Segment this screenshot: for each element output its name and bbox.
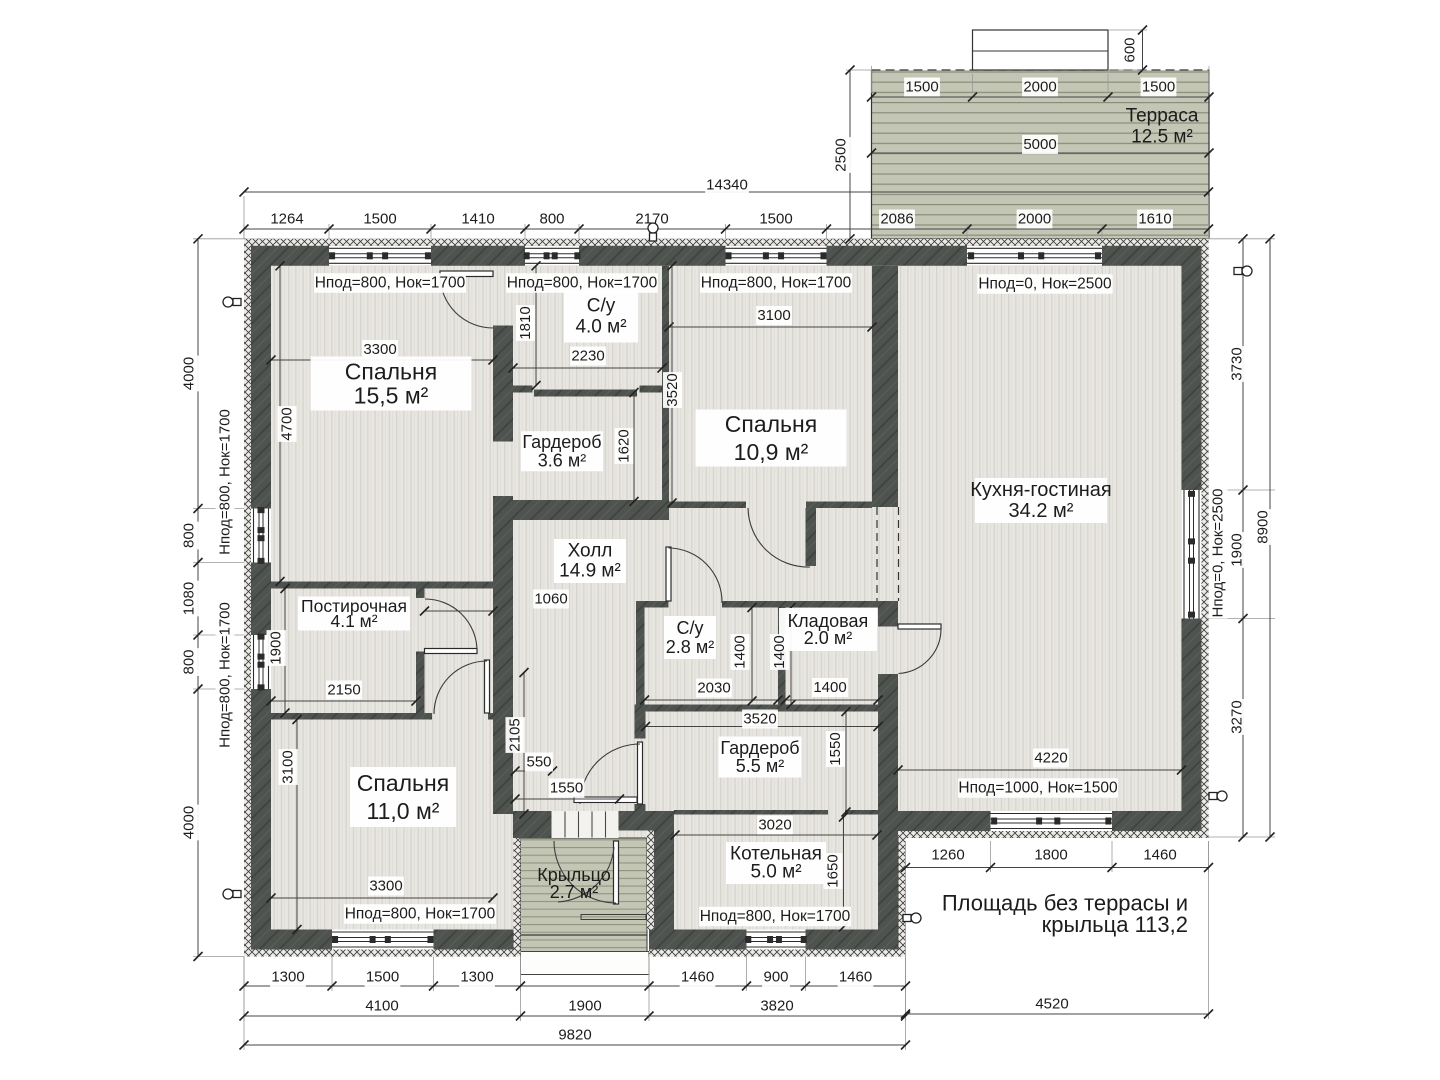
svg-text:14.9 м²: 14.9 м² — [559, 561, 621, 582]
svg-text:2150: 2150 — [327, 682, 360, 699]
svg-text:Нпод=800, Нок=1700: Нпод=800, Нок=1700 — [507, 275, 658, 292]
svg-text:3100: 3100 — [280, 750, 297, 783]
svg-text:Спальня: Спальня — [725, 411, 817, 437]
svg-text:2086: 2086 — [880, 211, 913, 228]
svg-text:2.0 м²: 2.0 м² — [804, 628, 852, 648]
svg-text:3020: 3020 — [758, 817, 791, 834]
svg-text:С/у: С/у — [677, 618, 704, 638]
svg-text:2.7 м²: 2.7 м² — [550, 882, 598, 902]
svg-text:1610: 1610 — [1138, 211, 1171, 228]
svg-text:4100: 4100 — [365, 998, 398, 1015]
svg-text:2.8 м²: 2.8 м² — [666, 637, 714, 657]
svg-text:2000: 2000 — [1018, 211, 1051, 228]
svg-text:1080: 1080 — [181, 582, 198, 615]
svg-text:1900: 1900 — [1229, 533, 1246, 566]
svg-text:5.5 м²: 5.5 м² — [736, 756, 784, 776]
svg-text:Нпод=0, Нок=2500: Нпод=0, Нок=2500 — [1210, 488, 1227, 617]
svg-text:3100: 3100 — [757, 307, 790, 324]
svg-text:5.0 м²: 5.0 м² — [750, 862, 801, 883]
svg-text:800: 800 — [181, 523, 198, 548]
svg-text:900: 900 — [763, 969, 788, 986]
svg-text:4.1 м²: 4.1 м² — [330, 611, 377, 631]
svg-text:10,9 м²: 10,9 м² — [734, 439, 809, 465]
svg-text:3270: 3270 — [1229, 700, 1246, 733]
svg-text:1410: 1410 — [461, 211, 494, 228]
svg-text:1264: 1264 — [270, 211, 303, 228]
svg-text:1650: 1650 — [825, 854, 842, 887]
svg-text:1400: 1400 — [732, 635, 749, 668]
svg-text:4000: 4000 — [181, 806, 198, 839]
svg-text:Холл: Холл — [568, 541, 613, 562]
svg-text:1810: 1810 — [517, 306, 534, 339]
svg-text:крыльца 113,2: крыльца 113,2 — [1042, 912, 1188, 937]
svg-text:3300: 3300 — [369, 878, 402, 895]
svg-text:12.5 м²: 12.5 м² — [1131, 127, 1193, 148]
svg-text:1460: 1460 — [839, 969, 872, 986]
svg-text:Нпод=800, Нок=1700: Нпод=800, Нок=1700 — [217, 602, 234, 748]
svg-text:800: 800 — [181, 649, 198, 674]
svg-text:2000: 2000 — [1023, 79, 1056, 96]
svg-text:Нпод=1000, Нок=1500: Нпод=1000, Нок=1500 — [958, 780, 1118, 797]
svg-text:С/у: С/у — [587, 296, 616, 317]
svg-text:1400: 1400 — [813, 679, 846, 696]
svg-text:1460: 1460 — [1143, 847, 1176, 864]
svg-text:8900: 8900 — [1255, 510, 1272, 543]
svg-text:Нпод=800, Нок=1700: Нпод=800, Нок=1700 — [315, 275, 466, 292]
svg-text:3.6 м²: 3.6 м² — [538, 451, 586, 471]
svg-text:3520: 3520 — [743, 711, 776, 728]
svg-text:800: 800 — [539, 211, 564, 228]
svg-text:4220: 4220 — [1034, 750, 1067, 767]
svg-text:34.2 м²: 34.2 м² — [1009, 500, 1074, 522]
svg-text:1500: 1500 — [1142, 79, 1175, 96]
svg-text:Терраса: Терраса — [1126, 106, 1199, 127]
svg-text:1900: 1900 — [568, 998, 601, 1015]
svg-text:1400: 1400 — [771, 635, 788, 668]
svg-text:2500: 2500 — [833, 138, 850, 171]
svg-text:Гардероб: Гардероб — [522, 432, 601, 452]
svg-text:1300: 1300 — [271, 969, 304, 986]
svg-text:3730: 3730 — [1229, 347, 1246, 380]
svg-text:4700: 4700 — [279, 407, 296, 440]
svg-text:1900: 1900 — [268, 631, 285, 664]
svg-text:4.0 м²: 4.0 м² — [575, 317, 626, 338]
svg-text:1460: 1460 — [681, 969, 714, 986]
svg-text:Нпод=0, Нок=2500: Нпод=0, Нок=2500 — [978, 276, 1112, 293]
svg-text:2230: 2230 — [571, 348, 604, 365]
svg-text:2030: 2030 — [697, 680, 730, 697]
svg-text:3820: 3820 — [760, 998, 793, 1015]
svg-text:1500: 1500 — [759, 211, 792, 228]
svg-text:1500: 1500 — [363, 211, 396, 228]
svg-text:11,0 м²: 11,0 м² — [367, 798, 440, 824]
svg-text:Спальня: Спальня — [357, 770, 449, 796]
svg-text:15,5 м²: 15,5 м² — [354, 383, 429, 409]
svg-text:1550: 1550 — [827, 732, 844, 765]
svg-text:Гардероб: Гардероб — [720, 738, 799, 758]
svg-text:2105: 2105 — [507, 718, 524, 751]
svg-text:1800: 1800 — [1034, 847, 1067, 864]
svg-text:3520: 3520 — [664, 373, 681, 406]
svg-text:Нпод=800, Нок=1700: Нпод=800, Нок=1700 — [700, 908, 851, 925]
svg-text:14340: 14340 — [706, 177, 748, 194]
svg-text:1500: 1500 — [366, 969, 399, 986]
svg-text:1620: 1620 — [616, 429, 633, 462]
svg-text:Кухня-гостиная: Кухня-гостиная — [970, 479, 1112, 501]
svg-text:Нпод=800, Нок=1700: Нпод=800, Нок=1700 — [701, 275, 852, 292]
svg-text:9820: 9820 — [558, 1027, 591, 1044]
svg-text:1550: 1550 — [550, 780, 583, 797]
svg-text:600: 600 — [1122, 37, 1139, 62]
svg-text:Нпод=800, Нок=1700: Нпод=800, Нок=1700 — [345, 906, 496, 923]
svg-text:Спальня: Спальня — [345, 359, 437, 385]
svg-text:4520: 4520 — [1035, 996, 1068, 1013]
svg-text:5000: 5000 — [1023, 136, 1056, 153]
svg-text:550: 550 — [526, 754, 551, 771]
svg-text:1060: 1060 — [534, 591, 567, 608]
svg-text:3300: 3300 — [363, 341, 396, 358]
svg-text:1500: 1500 — [905, 79, 938, 96]
svg-text:4000: 4000 — [181, 357, 198, 390]
svg-text:1260: 1260 — [931, 847, 964, 864]
svg-text:1300: 1300 — [460, 969, 493, 986]
svg-text:Нпод=800, Нок=1700: Нпод=800, Нок=1700 — [217, 409, 234, 555]
